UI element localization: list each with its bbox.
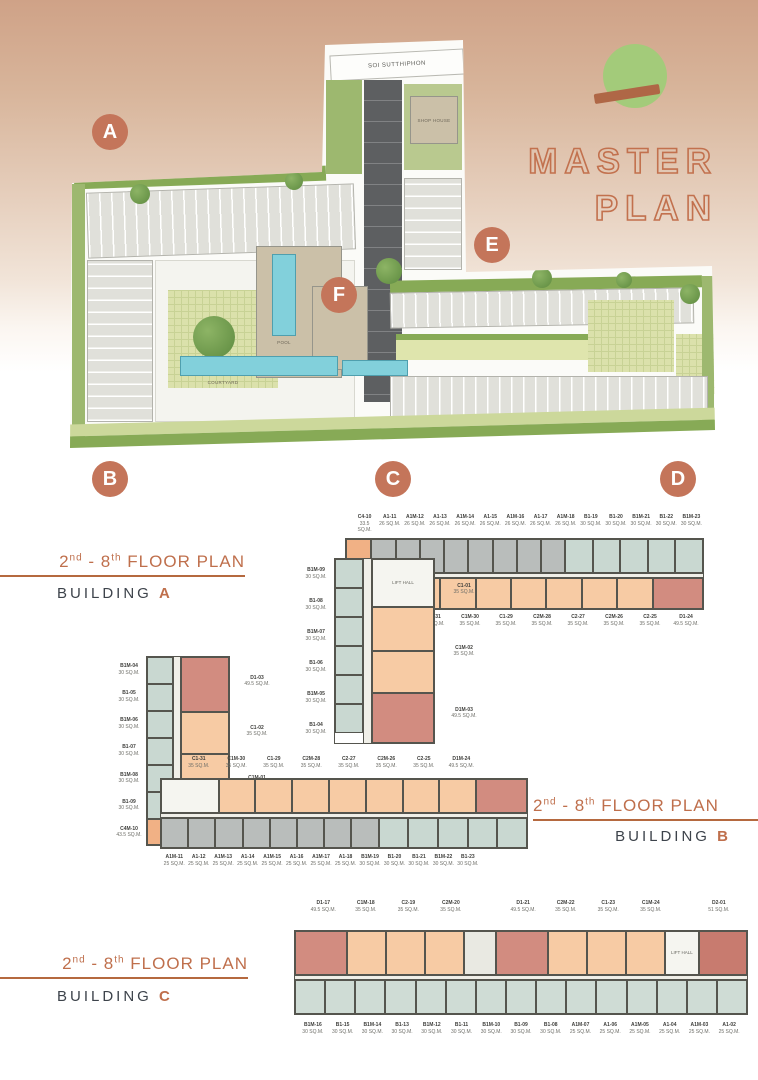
unit-label: B1M-1930 SQ.M. — [358, 854, 382, 867]
building-label-c: BUILDING C — [57, 988, 173, 1005]
unit-label: B1M-0730 SQ.M. — [298, 629, 334, 642]
unit-cell — [335, 617, 363, 646]
unit-label: A1M-1325 SQ.M. — [211, 854, 235, 867]
unit-area: 25 SQ.M. — [235, 861, 259, 868]
unit-area: 30 SQ.M. — [357, 1029, 387, 1036]
unit-code: A1M-17 — [309, 854, 333, 861]
unit-label: A1M-1626 SQ.M. — [503, 514, 528, 534]
unit-area: 35 SQ.M. — [345, 907, 388, 914]
unit-cell — [596, 980, 626, 1014]
unit-label: B1-0530 SQ.M. — [112, 690, 146, 703]
label-spacer — [672, 900, 698, 913]
unit-cell — [546, 578, 581, 609]
unit-area: 30 SQ.M. — [603, 521, 628, 528]
unit-cell — [329, 779, 366, 813]
range-sup: nd — [73, 954, 86, 965]
building-letter: C — [159, 988, 173, 1005]
range-text: FLOOR PLAN — [122, 552, 245, 571]
building-label-b: BUILDING B — [533, 828, 731, 845]
unit-area: 25 SQ.M. — [714, 1029, 744, 1036]
lawn-patch — [588, 300, 674, 372]
unit-label: A1M-0325 SQ.M. — [685, 1022, 715, 1035]
unit-label: C2M-2235 SQ.M. — [544, 900, 587, 913]
unit-area: 35 SQ.M. — [368, 763, 406, 770]
unit-cell — [324, 818, 351, 848]
unit-cell — [464, 931, 496, 975]
unit-label: A1-1625 SQ.M. — [284, 854, 308, 867]
floor-plan-heading-b: 2nd - 8th FLOOR PLAN — [533, 796, 758, 821]
unit-area: 26 SQ.M. — [377, 521, 402, 528]
unit-cell — [292, 779, 329, 813]
unit-label: C2-2535 SQ.M. — [632, 614, 668, 627]
unit-row — [295, 980, 747, 1014]
unit-cell — [657, 980, 687, 1014]
unit-cell — [566, 980, 596, 1014]
unit-code: A1M-18 — [553, 514, 578, 521]
unit-cell — [565, 539, 593, 573]
unit-area: 30 SQ.M. — [536, 1029, 566, 1036]
unit-cell — [582, 578, 617, 609]
pool-label: POOL — [266, 338, 302, 346]
building-word: BUILDING — [57, 988, 152, 1005]
unit-label: B1M-2130 SQ.M. — [629, 514, 654, 534]
unit-cell — [161, 818, 188, 848]
unit-area: 30 SQ.M. — [298, 636, 334, 643]
unit-row — [161, 779, 527, 813]
courtyard-label: COURTYARD — [178, 378, 268, 386]
unit-cell — [476, 779, 527, 813]
unit-area: 33.5 SQ.M. — [352, 521, 377, 534]
unit-label: C2M-2835 SQ.M. — [293, 756, 331, 769]
unit-area: 25 SQ.M. — [333, 861, 357, 868]
building-letter: B — [717, 828, 731, 845]
unit-area: 49.5 SQ.M. — [230, 681, 284, 688]
unit-label: B1-2330 SQ.M. — [456, 854, 480, 867]
page-title-line1: MASTER — [458, 138, 718, 185]
unit-area: 49.5 SQ.M. — [302, 907, 345, 914]
unit-label: C2-1935 SQ.M. — [387, 900, 430, 913]
unit-label: B1M-2330 SQ.M. — [679, 514, 704, 534]
unit-label: D1-0349.5 SQ.M. — [230, 675, 284, 688]
unit-area: 25 SQ.M. — [566, 1029, 596, 1036]
unit-label: A1M-1226 SQ.M. — [402, 514, 427, 534]
unit-label: C2-2735 SQ.M. — [560, 614, 596, 627]
unit-cell — [181, 657, 229, 712]
unit-label: B1-1930 SQ.M. — [578, 514, 603, 534]
unit-cell — [717, 980, 747, 1014]
unit-area: 25 SQ.M. — [595, 1029, 625, 1036]
unit-label: B1-2030 SQ.M. — [603, 514, 628, 534]
unit-label: A1M-1125 SQ.M. — [162, 854, 186, 867]
unit-code: B1M-23 — [679, 514, 704, 521]
unit-label: B1-2030 SQ.M. — [382, 854, 406, 867]
unit-area: 30 SQ.M. — [382, 861, 406, 868]
badge-building-b: B — [92, 461, 128, 497]
unit-label: D1-2449.5 SQ.M. — [668, 614, 704, 627]
range-text: FLOOR PLAN — [596, 796, 719, 815]
plan-strip — [160, 778, 528, 849]
unit-area: 35 SQ.M. — [596, 621, 632, 628]
unit-area: 35 SQ.M. — [255, 763, 293, 770]
unit-area: 26 SQ.M. — [478, 521, 503, 528]
range-sup: nd — [543, 796, 556, 807]
unit-label: B1M-1030 SQ.M. — [476, 1022, 506, 1035]
unit-label: C2M-2035 SQ.M. — [430, 900, 473, 913]
unit-cell — [506, 980, 536, 1014]
unit-label: C4-1033.5 SQ.M. — [352, 514, 377, 534]
unit-cell — [295, 980, 325, 1014]
unit-cell — [536, 980, 566, 1014]
unit-cell — [351, 818, 378, 848]
unit-cell — [385, 980, 415, 1014]
unit-label: D1M-2449.5 SQ.M. — [443, 756, 481, 769]
unit-label: C1-2335 SQ.M. — [587, 900, 630, 913]
range-text: 2 — [62, 954, 72, 973]
unit-cell — [587, 931, 626, 975]
range-sup: th — [585, 796, 595, 807]
unit-area: 30 SQ.M. — [417, 1029, 447, 1036]
unit-cell — [243, 818, 270, 848]
unit-area: 30 SQ.M. — [298, 574, 334, 581]
unit-area: 35 SQ.M. — [230, 731, 284, 738]
unit-cell: LIFT HALL — [372, 559, 434, 607]
unit-cell — [335, 559, 363, 588]
unit-area: 25 SQ.M. — [309, 861, 333, 868]
unit-label: C1-0235 SQ.M. — [230, 725, 284, 738]
landscape-strip — [72, 184, 85, 442]
unit-code: B1M-22 — [431, 854, 455, 861]
unit-area: 30 SQ.M. — [298, 605, 334, 612]
unit-label: B1-0830 SQ.M. — [298, 598, 334, 611]
brochure-page: MASTER PLAN SOI SUTTHIPHON SHOP HOUSE CO… — [0, 0, 758, 1080]
unit-area: 35 SQ.M. — [629, 907, 672, 914]
unit-area: 35 SQ.M. — [560, 621, 596, 628]
building-label-a: BUILDING A — [57, 585, 173, 602]
unit-area: 30 SQ.M. — [629, 521, 654, 528]
unit-label: C2-2735 SQ.M. — [330, 756, 368, 769]
unit-label: A1M-1826 SQ.M. — [553, 514, 578, 534]
unit-cell — [593, 539, 621, 573]
tree-icon — [532, 268, 552, 288]
unit-label: A1-0225 SQ.M. — [714, 1022, 744, 1035]
unit-label-row: A1M-1125 SQ.M.A1-1225 SQ.M.A1M-1325 SQ.M… — [162, 854, 480, 867]
unit-area: 30 SQ.M. — [447, 1029, 477, 1036]
unit-area: 43.5 SQ.M. — [112, 832, 146, 839]
unit-area: 30 SQ.M. — [112, 670, 146, 677]
floor-plan-heading-a: 2nd - 8th FLOOR PLAN — [0, 552, 245, 577]
unit-cell — [372, 607, 434, 651]
unit-cell — [147, 657, 173, 684]
unit-area: 30 SQ.M. — [679, 521, 704, 528]
unit-label: C1-2935 SQ.M. — [255, 756, 293, 769]
unit-area: 30 SQ.M. — [431, 861, 455, 868]
unit-area: 35 SQ.M. — [405, 763, 443, 770]
unit-label: A1M-0525 SQ.M. — [625, 1022, 655, 1035]
floor-plan-heading-c: 2nd - 8th FLOOR PLAN — [0, 954, 248, 979]
range-text: FLOOR PLAN — [125, 954, 248, 973]
unit-area: 30 SQ.M. — [476, 1029, 506, 1036]
unit-label: C1-3135 SQ.M. — [180, 756, 218, 769]
unit-label: A1-1526 SQ.M. — [478, 514, 503, 534]
unit-cell — [446, 980, 476, 1014]
unit-label: A1-1225 SQ.M. — [186, 854, 210, 867]
unit-label: B1-2130 SQ.M. — [407, 854, 431, 867]
unit-label: B1-0830 SQ.M. — [536, 1022, 566, 1035]
unit-label: C2M-2635 SQ.M. — [596, 614, 632, 627]
unit-cell — [355, 980, 385, 1014]
parking-block — [404, 178, 462, 270]
unit-cell — [439, 779, 476, 813]
building-letter: A — [159, 585, 173, 602]
shophouse-block: SHOP HOUSE — [410, 96, 458, 144]
unit-area: 30 SQ.M. — [112, 805, 146, 812]
unit-area: 26 SQ.M. — [528, 521, 553, 528]
unit-cell — [617, 578, 652, 609]
unit-label: B1-1130 SQ.M. — [447, 1022, 477, 1035]
unit-label: B1-1330 SQ.M. — [387, 1022, 417, 1035]
unit-label-row: C1-3135 SQ.M.C1M-3035 SQ.M.C1-2935 SQ.M.… — [180, 756, 480, 769]
unit-cell — [648, 539, 676, 573]
unit-area: 49.5 SQ.M. — [668, 621, 704, 628]
unit-area: 35 SQ.M. — [587, 907, 630, 914]
road-label: SOI SUTTHIPHON — [329, 49, 464, 82]
unit-cell — [476, 980, 506, 1014]
unit-label: B1-2230 SQ.M. — [654, 514, 679, 534]
unit-label: B1M-2230 SQ.M. — [431, 854, 455, 867]
unit-area: 30 SQ.M. — [298, 1029, 328, 1036]
unit-area: 25 SQ.M. — [284, 861, 308, 868]
unit-label: C1M-1835 SQ.M. — [345, 900, 388, 913]
range-sup: th — [114, 954, 124, 965]
garden-lawn — [396, 340, 592, 360]
unit-area: 35 SQ.M. — [218, 763, 256, 770]
unit-label: A1-1425 SQ.M. — [235, 854, 259, 867]
badge-building-e: E — [474, 227, 510, 263]
unit-cell — [325, 980, 355, 1014]
unit-label: B1-0930 SQ.M. — [112, 799, 146, 812]
unit-cell — [255, 779, 292, 813]
unit-label: B1-1530 SQ.M. — [328, 1022, 358, 1035]
unit-cell — [627, 980, 657, 1014]
unit-cell — [147, 711, 173, 738]
unit-cell — [403, 779, 440, 813]
unit-area: 30 SQ.M. — [112, 724, 146, 731]
tree-icon — [376, 258, 402, 284]
unit-code: A1M-14 — [453, 514, 478, 521]
unit-label: D1-2149.5 SQ.M. — [502, 900, 545, 913]
unit-area: 30 SQ.M. — [112, 697, 146, 704]
unit-code: A1M-16 — [503, 514, 528, 521]
range-text: - 8 — [83, 552, 112, 571]
unit-cell — [699, 931, 747, 975]
unit-label: A1M-0725 SQ.M. — [566, 1022, 596, 1035]
unit-code: A1M-11 — [162, 854, 186, 861]
unit-area: 35 SQ.M. — [293, 763, 331, 770]
unit-area: 35 SQ.M. — [180, 763, 218, 770]
unit-cell — [297, 818, 324, 848]
unit-area: 35 SQ.M. — [330, 763, 368, 770]
unit-label: A1M-1525 SQ.M. — [260, 854, 284, 867]
unit-cell — [188, 818, 215, 848]
unit-area: 26 SQ.M. — [402, 521, 427, 528]
parking-block — [87, 260, 153, 422]
unit-label: A1-1825 SQ.M. — [333, 854, 357, 867]
unit-label: D2-0151 SQ.M. — [698, 900, 741, 913]
unit-cell — [626, 931, 665, 975]
range-text: - 8 — [557, 796, 586, 815]
unit-cell — [335, 588, 363, 617]
unit-label: B1M-0930 SQ.M. — [298, 567, 334, 580]
unit-cell — [620, 539, 648, 573]
tree-icon — [285, 172, 303, 190]
range-sup: nd — [70, 552, 83, 563]
pool — [272, 254, 296, 336]
unit-cell — [347, 931, 386, 975]
unit-area: 30 SQ.M. — [506, 1029, 536, 1036]
unit-label: A1-1126 SQ.M. — [377, 514, 402, 534]
unit-cell — [215, 818, 242, 848]
unit-area: 30 SQ.M. — [456, 861, 480, 868]
unit-area: 30 SQ.M. — [654, 521, 679, 528]
unit-cell — [386, 931, 425, 975]
unit-cell — [687, 980, 717, 1014]
unit-cell — [147, 738, 173, 765]
unit-area: 25 SQ.M. — [260, 861, 284, 868]
unit-area: 26 SQ.M. — [503, 521, 528, 528]
unit-label: A1M-1725 SQ.M. — [309, 854, 333, 867]
unit-code: A1M-12 — [402, 514, 427, 521]
unit-area: 49.5 SQ.M. — [443, 763, 481, 770]
unit-area: 49.5 SQ.M. — [502, 907, 545, 914]
unit-area: 35 SQ.M. — [430, 907, 473, 914]
unit-area: 51 SQ.M. — [698, 907, 741, 914]
unit-area: 25 SQ.M. — [655, 1029, 685, 1036]
unit-row: LIFT HALL — [295, 931, 747, 975]
unit-label-row: D1-1749.5 SQ.M.C1M-1835 SQ.M.C2-1935 SQ.… — [302, 900, 740, 913]
building-word: BUILDING — [615, 828, 710, 845]
plan-strip: LIFT HALL — [294, 930, 748, 1015]
kids-pool — [342, 360, 408, 376]
unit-cell — [366, 779, 403, 813]
unit-cell — [675, 539, 703, 573]
tree-icon — [616, 272, 632, 288]
unit-area: 30 SQ.M. — [112, 751, 146, 758]
unit-label: C2M-2635 SQ.M. — [368, 756, 406, 769]
unit-area: 35 SQ.M. — [435, 589, 493, 596]
unit-area: 25 SQ.M. — [625, 1029, 655, 1036]
unit-label: B1M-0430 SQ.M. — [112, 663, 146, 676]
unit-area: 26 SQ.M. — [553, 521, 578, 528]
unit-label-row: B1M-1630 SQ.M.B1-1530 SQ.M.B1M-1430 SQ.M… — [298, 1022, 744, 1035]
label-spacer — [472, 900, 502, 913]
unit-area: 30 SQ.M. — [407, 861, 431, 868]
badge-building-d: D — [660, 461, 696, 497]
page-title-line2: PLAN — [458, 185, 718, 232]
unit-cell — [270, 818, 297, 848]
unit-code: B1M-19 — [358, 854, 382, 861]
unit-label: B1-0730 SQ.M. — [112, 744, 146, 757]
unit-cell — [468, 818, 498, 848]
unit-cell: LIFT HALL — [665, 931, 699, 975]
unit-label: B1M-1630 SQ.M. — [298, 1022, 328, 1035]
unit-label: A1-1726 SQ.M. — [528, 514, 553, 534]
landscape-strip — [326, 80, 362, 174]
range-sup: th — [111, 552, 121, 563]
unit-cell — [379, 818, 409, 848]
badge-building-a: A — [92, 114, 128, 150]
unit-cell — [497, 818, 527, 848]
unit-label: C1M-3035 SQ.M. — [218, 756, 256, 769]
unit-area: 35 SQ.M. — [544, 907, 587, 914]
tree-icon — [130, 184, 150, 204]
unit-cell — [653, 578, 703, 609]
unit-area: 25 SQ.M. — [162, 861, 186, 868]
badge-building-f: F — [321, 277, 357, 313]
unit-area: 25 SQ.M. — [211, 861, 235, 868]
unit-row — [161, 818, 527, 848]
unit-area: 30 SQ.M. — [578, 521, 603, 528]
unit-area: 30 SQ.M. — [328, 1029, 358, 1036]
unit-area: 30 SQ.M. — [112, 778, 146, 785]
unit-cell — [425, 931, 464, 975]
unit-area: 26 SQ.M. — [453, 521, 478, 528]
unit-cell — [438, 818, 468, 848]
unit-label: C2-2535 SQ.M. — [405, 756, 443, 769]
unit-cell — [548, 931, 587, 975]
unit-code: A1M-13 — [211, 854, 235, 861]
badge-building-c: C — [375, 461, 411, 497]
unit-area: 35 SQ.M. — [632, 621, 668, 628]
unit-label: B1-0930 SQ.M. — [506, 1022, 536, 1035]
building-word: BUILDING — [57, 585, 152, 602]
floor-plan-building-c: D1-1749.5 SQ.M.C1M-1835 SQ.M.C2-1935 SQ.… — [288, 896, 754, 1060]
unit-label: B1M-1230 SQ.M. — [417, 1022, 447, 1035]
unit-area: 30 SQ.M. — [358, 861, 382, 868]
unit-cell — [147, 684, 173, 711]
unit-area: 25 SQ.M. — [186, 861, 210, 868]
unit-code: A1M-15 — [260, 854, 284, 861]
floor-plan-building-b: B1M-0430 SQ.M.B1-0530 SQ.M.B1M-0630 SQ.M… — [110, 648, 535, 888]
unit-label: A1-1326 SQ.M. — [427, 514, 452, 534]
unit-cell — [416, 980, 446, 1014]
unit-label: C1M-2435 SQ.M. — [629, 900, 672, 913]
unit-cell — [219, 779, 256, 813]
unit-area: 25 SQ.M. — [685, 1029, 715, 1036]
unit-label-row: C4-1033.5 SQ.M.A1-1126 SQ.M.A1M-1226 SQ.… — [352, 514, 704, 534]
unit-area: 30 SQ.M. — [387, 1029, 417, 1036]
page-title: MASTER PLAN — [458, 138, 718, 233]
unit-code: B1M-21 — [629, 514, 654, 521]
unit-cell — [408, 818, 438, 848]
unit-area: 26 SQ.M. — [427, 521, 452, 528]
range-text: - 8 — [86, 954, 115, 973]
lap-pool — [180, 356, 338, 376]
unit-cell — [181, 712, 229, 754]
unit-label: C4M-1043.5 SQ.M. — [112, 826, 146, 839]
range-text: 2 — [59, 552, 69, 571]
unit-cell — [541, 539, 565, 573]
unit-label: B1M-0630 SQ.M. — [112, 717, 146, 730]
unit-label: B1M-1430 SQ.M. — [357, 1022, 387, 1035]
unit-label-column: B1M-0430 SQ.M.B1-0530 SQ.M.B1M-0630 SQ.M… — [112, 656, 146, 846]
tree-icon — [680, 284, 700, 304]
unit-cell — [295, 931, 347, 975]
unit-label: A1M-1426 SQ.M. — [453, 514, 478, 534]
unit-cell — [161, 779, 219, 813]
unit-label: D1-1749.5 SQ.M. — [302, 900, 345, 913]
unit-label: A1-0625 SQ.M. — [595, 1022, 625, 1035]
unit-area: 35 SQ.M. — [387, 907, 430, 914]
